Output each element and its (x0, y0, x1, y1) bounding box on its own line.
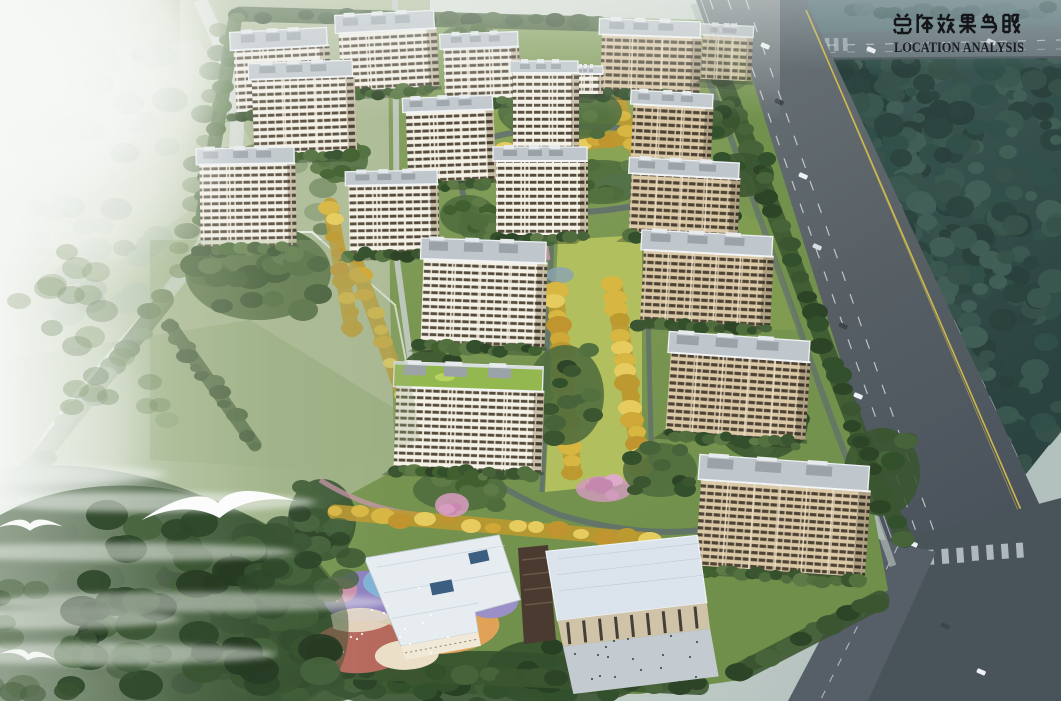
svg-text:LOCATION ANALYSIS: LOCATION ANALYSIS (894, 40, 1024, 56)
